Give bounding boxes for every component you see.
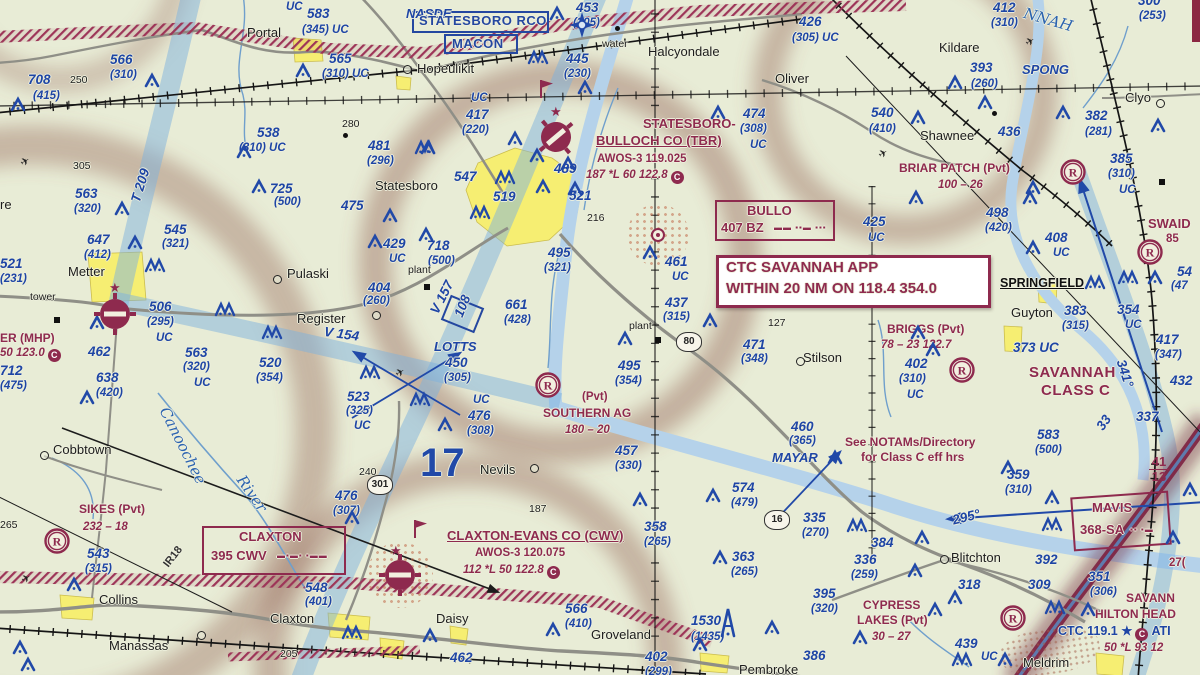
obstacle-elevation-label: 476 (468, 409, 491, 423)
label-text: 354 (1117, 302, 1140, 317)
airport-data-label: 112 *L 50 122.8C (463, 564, 560, 579)
obstacle-elevation-label: 523 (347, 390, 370, 404)
obstacle-elevation-label: 548 (305, 581, 328, 595)
obstacle-icon (1054, 104, 1072, 120)
town-circle-icon (796, 357, 805, 366)
label-text: (500) (274, 196, 301, 208)
label-text: (265) (644, 536, 671, 548)
label-text: 498 (986, 205, 1009, 220)
obstacle-agl-label: (420) (985, 222, 1012, 234)
label-text: UC (868, 232, 885, 244)
obstacle-elevation-label: 412 (993, 1, 1016, 15)
navaid-ident-label: MAVIS (1092, 501, 1132, 515)
town-label: Manassas (109, 639, 168, 653)
obstacle-agl-label: UC (286, 1, 303, 13)
obstacle-group-icon (358, 364, 382, 380)
label-text: 521 (0, 256, 23, 271)
label-text: (270) (802, 527, 829, 539)
spot-elevation-label: tower (30, 292, 56, 303)
label-text: Collins (99, 592, 138, 607)
airport-name-label: SIKES (Pvt) (79, 503, 145, 516)
obstacle-elevation-label: 565 (329, 52, 352, 66)
obstacle-icon (946, 74, 964, 90)
latitude-band-label: 17 (420, 442, 465, 484)
obstacle-agl-label: (253) (1139, 10, 1166, 22)
spot-elevation-label: plant (408, 265, 431, 276)
label-text: UC (672, 271, 689, 283)
label-text: 54 (1177, 264, 1192, 279)
airport-data-label: 187 *L 60 122.8C (586, 169, 684, 184)
label-text: 545 (164, 222, 187, 237)
town-circle-icon (940, 555, 949, 564)
airport-icon (92, 291, 138, 337)
notam-note-label: for Class C eff hrs (861, 451, 964, 464)
obstacle-agl-label: UC (868, 232, 885, 244)
town-label: Daisy (436, 612, 469, 626)
obstacle-icon (701, 312, 719, 328)
label-text: 112 *L 50 122.8 (463, 564, 544, 576)
obstacle-agl-label: UC (1119, 184, 1136, 196)
label-text: (401) (305, 596, 332, 608)
label-text: (365) (789, 435, 816, 447)
label-text: (320) (74, 203, 101, 215)
obstacle-group-icon (1083, 274, 1107, 290)
label-text: 476 (468, 408, 491, 423)
obstacle-agl-label: UC (156, 332, 173, 344)
label-text: Pulaski (287, 266, 329, 281)
obstacle-elevation-label: 540 (871, 106, 894, 120)
spot-elevation-label: 187 (529, 504, 547, 515)
label-text: (412) (84, 249, 111, 261)
label-text: Groveland (591, 627, 651, 642)
label-text: SPRINGFIELD (1000, 276, 1084, 290)
label-text: 457 (615, 443, 638, 458)
label-text: (310) (1108, 168, 1135, 180)
label-text: 187 (529, 503, 547, 515)
obstacle-agl-label: (265) (731, 566, 758, 578)
label-text: (310) (110, 69, 137, 81)
obstacle-icon (641, 244, 659, 260)
label-text: (295) (147, 316, 174, 328)
ctaf-circle-c-icon: C (671, 171, 684, 184)
town-label: Register (297, 312, 345, 326)
label-text: 250 (70, 74, 88, 86)
label-text: 461 (665, 254, 688, 269)
label-text: 661 (505, 297, 528, 312)
label-text: UC (389, 253, 406, 265)
town-label: Claxton (270, 612, 314, 626)
obstacle-elevation-label: 336 (854, 553, 877, 567)
obstacle-agl-label: (310) (1108, 168, 1135, 180)
label-text: 565 (329, 51, 352, 66)
svg-text:R: R (1146, 246, 1155, 260)
label-text: (410) (565, 618, 592, 630)
obstacle-agl-label: (415) (33, 90, 60, 102)
obstacle-elevation-label: 498 (986, 206, 1009, 220)
label-text: 408 (1045, 230, 1068, 245)
town-label: Clyo (1125, 91, 1151, 105)
label-text: (306) (1090, 586, 1117, 598)
fix-name-label: LOTTS (434, 340, 477, 354)
obstacle-agl-label: (320) (811, 603, 838, 615)
label-text: 395 (813, 586, 836, 601)
label-text: (500) (1035, 444, 1062, 456)
label-text: 363 (732, 549, 755, 564)
label-text: 563 (185, 345, 208, 360)
obstacle-elevation-label: 712 (0, 364, 23, 378)
label-text: 417 (466, 107, 489, 122)
label-text: CYPRESS (863, 598, 920, 612)
obstacle-elevation-label: 462 (450, 651, 473, 665)
label-text: 519 (493, 189, 516, 204)
label-text: (310) (1005, 484, 1032, 496)
label-text: Claxton (270, 611, 314, 626)
town-circle-icon (197, 631, 206, 640)
airport-data-label: AWOS-3 120.075 (475, 547, 565, 559)
obstacle-group-icon (413, 139, 437, 155)
obstacle-icon (436, 416, 454, 432)
rco-box-label: MACON (452, 37, 504, 51)
obstacle-icon (113, 200, 131, 216)
obstacle-agl-label: (401) (305, 596, 332, 608)
highway-number: 80 (683, 336, 694, 347)
obstacle-elevation-label: 520 (259, 356, 282, 370)
label-text: (310) UC (322, 68, 369, 80)
navaid-ident-label: BULLO (747, 204, 792, 218)
obstacle-agl-label: (345) UC (302, 24, 349, 36)
label-text: 708 (28, 72, 51, 87)
building-square-icon (54, 317, 60, 323)
label-text: AWOS-3 119.025 (597, 153, 687, 165)
obstacle-elevation-label: 445 (566, 52, 589, 66)
obstacle-icon (250, 178, 268, 194)
obstacle-elevation-label: 725 (270, 182, 293, 196)
obstacle-icon (1146, 269, 1164, 285)
label-text: (415) (33, 90, 60, 102)
obstacle-elevation-label: 543 (87, 547, 110, 561)
label-text: UC (471, 92, 488, 104)
obstacle-agl-label: (299) (645, 666, 672, 675)
label-text: 402 (905, 356, 928, 371)
label-text: (410) (869, 123, 896, 135)
r-circle-icon: R (1059, 158, 1087, 186)
label-text: 305 (73, 160, 91, 172)
obstacle-elevation-label: 402 (645, 650, 668, 664)
svg-text:R: R (1009, 612, 1018, 626)
obstacle-group-icon (950, 651, 974, 667)
label-text: Cobbtown (53, 442, 112, 457)
highway-shield: 80 (676, 332, 702, 352)
navaid-ident-label: 368-SA (1080, 523, 1124, 537)
svg-text:R: R (958, 364, 967, 378)
label-text: Metter (68, 264, 105, 279)
obstacle-group-icon (408, 391, 432, 407)
building-square-icon (655, 337, 661, 343)
label-text: Blitchton (951, 550, 1001, 565)
obstacle-icon (366, 233, 384, 249)
obstacle-icon (1164, 529, 1182, 545)
label-text: UC (286, 1, 303, 13)
label-text: 205 (280, 648, 298, 660)
obstacle-elevation-label: 373 UC (1013, 341, 1059, 355)
obstacle-elevation-label: 437 (665, 296, 688, 310)
tall-obstacle-icon (718, 606, 738, 638)
obstacle-elevation-label: 417 (466, 108, 489, 122)
obstacle-elevation-label: 647 (87, 233, 110, 247)
spot-elevation-label: 280 (342, 119, 360, 130)
label-text: 583 (307, 6, 330, 21)
town-label: Collins (99, 593, 138, 607)
obstacle-icon (548, 5, 566, 21)
label-text: 481 (368, 138, 391, 153)
spot-elevation-label: 127 (768, 318, 786, 329)
obstacle-agl-label: (265) (644, 536, 671, 548)
label-text: 351 (1088, 569, 1111, 584)
label-text: UC (1125, 319, 1142, 331)
obstacle-agl-label: (259) (851, 569, 878, 581)
label-text: Daisy (436, 611, 469, 626)
highway-shield: 16 (764, 510, 790, 530)
obstacle-elevation-label: 481 (368, 139, 391, 153)
obstacle-agl-label: UC (473, 394, 490, 406)
label-text: (321) (162, 238, 189, 250)
obstacle-elevation-label: 661 (505, 298, 528, 312)
label-text: (420) (985, 222, 1012, 234)
obstacle-elevation-label: 358 (644, 520, 667, 534)
label-text: 407 BZ (721, 220, 764, 235)
label-text: 462 (450, 650, 473, 665)
obstacle-elevation-label: 392 (1035, 553, 1058, 567)
spot-elevation-label: 265 (0, 520, 18, 531)
label-text: (345) UC (302, 24, 349, 36)
label-text: 425 (863, 214, 886, 229)
label-text: HILTON HEAD (1095, 607, 1176, 621)
airport-data-label: 100 – 26 (938, 179, 983, 191)
obstacle-elevation-label: 708 (28, 73, 51, 87)
fix-name-label: MAYAR (772, 451, 818, 465)
airport-data-label: 50 *L 93 12 (1104, 642, 1163, 654)
label-text: water (602, 38, 628, 50)
obstacle-icon (421, 627, 439, 643)
label-text: 412 (993, 0, 1016, 15)
checkpoint-flag-icon (411, 517, 429, 539)
obstacle-agl-label: (321) (544, 262, 571, 274)
obstacle-icon (78, 389, 96, 405)
obstacle-agl-label: (315) (85, 563, 112, 575)
obstacle-elevation-label: 474 (743, 107, 766, 121)
obstacle-elevation-label: 383 (1064, 304, 1087, 318)
obstacle-elevation-label: 436 (998, 125, 1021, 139)
navaid-ident-label: SWAID (1148, 217, 1191, 231)
airport-name-label: CLAXTON-EVANS CO (CWV) (447, 529, 623, 543)
label-text: 566 (565, 601, 588, 616)
label-text: 337 (1136, 409, 1159, 424)
obstacle-group-icon (845, 517, 869, 533)
obstacle-elevation-label: 335 (803, 511, 826, 525)
obstacle-elevation-label: 460 (791, 420, 814, 434)
label-text: 335 (803, 510, 826, 525)
town-label: Stilson (803, 351, 842, 365)
obstacle-elevation-label: 462 (88, 345, 111, 359)
obstacle-group-icon (493, 169, 517, 185)
ctaf-circle-c-icon: C (48, 349, 61, 362)
airport-name-label: BULLOCH CO (TBR) (596, 134, 722, 148)
airport-name-label: SAVANN (1126, 592, 1175, 605)
airport-data-label: 30 – 27 (872, 631, 910, 643)
beacon-star-icon: ★ (390, 544, 402, 557)
highway-shield: 301 (367, 475, 393, 495)
label-text: plant (408, 264, 431, 276)
obstacle-icon (534, 178, 552, 194)
svg-text:R: R (544, 379, 553, 393)
obstacle-agl-label: UC (750, 139, 767, 151)
label-text: 439 (955, 636, 978, 651)
label-text: 476 (335, 488, 358, 503)
label-text: (299) (645, 666, 672, 675)
label-text: 437 (665, 295, 688, 310)
obstacle-elevation-label: 363 (732, 550, 755, 564)
beacon-star-icon: ★ (109, 281, 121, 294)
obstacle-elevation-label: 506 (149, 300, 172, 314)
obstacle-agl-label: UC (194, 377, 211, 389)
obstacle-icon (913, 529, 931, 545)
obstacle-icon (924, 341, 942, 357)
navaid-ident-label: 395 CWV (211, 549, 267, 563)
label-text: 475 (341, 198, 364, 213)
morse-code-label: ▬▬ ▪▪▬ ▪▪▪ (774, 224, 827, 232)
label-text: 712 (0, 363, 23, 378)
label-text: UC (194, 377, 211, 389)
label-text: (348) (741, 353, 768, 365)
obstacle-elevation-label: 574 (732, 481, 755, 495)
obstacle-elevation-label: 408 (1045, 231, 1068, 245)
obstacle-elevation-label: 538 (257, 126, 280, 140)
r-circle-icon: R (43, 527, 71, 555)
town-label: Metter (68, 265, 105, 279)
label-text: Kildare (939, 40, 979, 55)
label-text: 445 (566, 51, 589, 66)
label-text: (321) (544, 262, 571, 274)
label-text: 265 (0, 519, 18, 531)
obstacle-agl-label: (315) (663, 311, 690, 323)
obstacle-icon (126, 234, 144, 250)
obstacle-icon (417, 226, 435, 242)
label-text: 383 (1064, 303, 1087, 318)
label-text: (308) (467, 425, 494, 437)
spot-dot-icon (615, 26, 620, 31)
label-text: SAVANNAH (1029, 364, 1116, 381)
obstacle-elevation-label: 439 (955, 637, 978, 651)
obstacle-icon (506, 130, 524, 146)
obstacle-elevation-label: 300 (1138, 0, 1161, 8)
obstacle-agl-label: (321) (162, 238, 189, 250)
airport-data-label: 180 – 20 (565, 424, 610, 436)
label-text: 450 (445, 355, 468, 370)
label-text: AWOS-3 120.075 (475, 547, 565, 559)
label-text: 358 (644, 519, 667, 534)
label-text: 538 (257, 125, 280, 140)
obstacle-elevation-label: 461 (665, 255, 688, 269)
obstacle-elevation-label: 563 (185, 346, 208, 360)
label-text: (479) (731, 497, 758, 509)
obstacle-icon (909, 109, 927, 125)
label-text: (Pvt) (582, 391, 608, 403)
label-text: 583 (1037, 427, 1060, 442)
label-text: (315) (1062, 320, 1089, 332)
obstacle-elevation-label: 417 (1156, 333, 1179, 347)
ctaf-circle-c-icon: C (1135, 628, 1148, 641)
label-text: 180 – 20 (565, 424, 610, 436)
sectional-chart-canvas[interactable]: UCNASDE583(345) UCPortal565(310) UC566(3… (0, 0, 1200, 675)
obstacle-icon (294, 62, 312, 78)
label-text: 429 (383, 236, 406, 251)
town-label: Hopeulikit (417, 62, 474, 76)
label-text: 384 (871, 535, 894, 550)
highway-number: 16 (771, 514, 782, 525)
obstacle-icon (926, 601, 944, 617)
obstacle-group-icon (468, 204, 492, 220)
label-text: 725 (270, 181, 293, 196)
obstacle-agl-label: (330) (615, 460, 642, 472)
label-text: MAYAR (772, 450, 818, 465)
spot-dot-icon (343, 133, 348, 138)
r-circle-icon: R (1136, 238, 1164, 266)
fraction-top: 41 (1149, 455, 1169, 470)
label-text: 85 (1166, 233, 1179, 245)
label-text: (428) (504, 314, 531, 326)
label-text: UC (907, 389, 924, 401)
obstacle-elevation-label: 583 (1037, 428, 1060, 442)
label-text: Manassas (109, 638, 168, 653)
label-text: 386 (803, 648, 826, 663)
town-label: Cobbtown (53, 443, 112, 457)
town-label: Meldrim (1023, 656, 1069, 670)
obstacle-agl-label: UC (672, 271, 689, 283)
label-text: (47 (1171, 280, 1188, 292)
label-text: (310) (899, 373, 926, 385)
label-text: BRIAR PATCH (Pvt) (899, 161, 1010, 175)
label-text: tower (30, 291, 56, 303)
obstacle-agl-label: (410) (869, 123, 896, 135)
label-text: 50 *L 93 12 (1104, 642, 1163, 654)
label-text: 187 *L 60 122.8 (586, 169, 668, 181)
svg-text:R: R (1069, 166, 1078, 180)
obstacle-elevation-label: 583 (307, 7, 330, 21)
obstacle-agl-label: (365) (789, 435, 816, 447)
obstacle-agl-label: (428) (504, 314, 531, 326)
label-text: (347) (1155, 349, 1182, 361)
obstacle-icon (999, 459, 1017, 475)
label-text: 647 (87, 232, 110, 247)
spot-dot-icon (992, 111, 997, 116)
obstacle-elevation-label: 384 (871, 536, 894, 550)
obstacle-elevation-label: 54 (1177, 265, 1192, 279)
obstacle-agl-label: (412) (84, 249, 111, 261)
obstacle-agl-label: (479) (731, 497, 758, 509)
obstacle-agl-label: (231) (0, 273, 27, 285)
label-text: (354) (615, 375, 642, 387)
label-text: (325) (346, 405, 373, 417)
class-c-label: SAVANNAH (1029, 365, 1116, 381)
obstacle-elevation-label: 471 (743, 338, 766, 352)
obstacle-icon (19, 656, 37, 672)
obstacle-elevation-label: 309 (1028, 578, 1051, 592)
obstacle-agl-label: (220) (462, 124, 489, 136)
label-text: CTC SAVANNAH APP (726, 259, 878, 276)
obstacle-agl-label: UC (1053, 247, 1070, 259)
label-text: 638 (96, 370, 119, 385)
label-text: ▬▬ ▪▪▬ ▪▪▪ (774, 223, 827, 232)
